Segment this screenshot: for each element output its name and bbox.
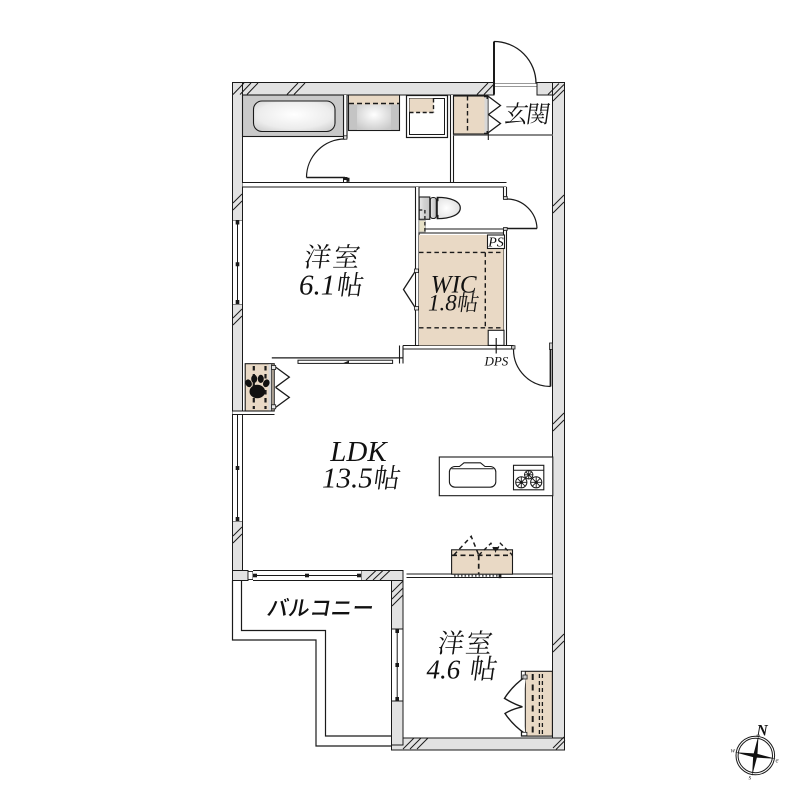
svg-text:13.5: 13.5 [322,463,373,495]
svg-text:4.6: 4.6 [427,655,461,685]
svg-text:e: e [776,757,779,765]
svg-text:1.8: 1.8 [428,291,457,316]
svg-text:N: N [756,723,769,740]
svg-text:w: w [731,747,736,755]
svg-text:s: s [749,774,752,782]
svg-text:PS: PS [487,236,504,251]
svg-text:DPS: DPS [483,354,508,369]
svg-text:6.1: 6.1 [299,270,335,302]
